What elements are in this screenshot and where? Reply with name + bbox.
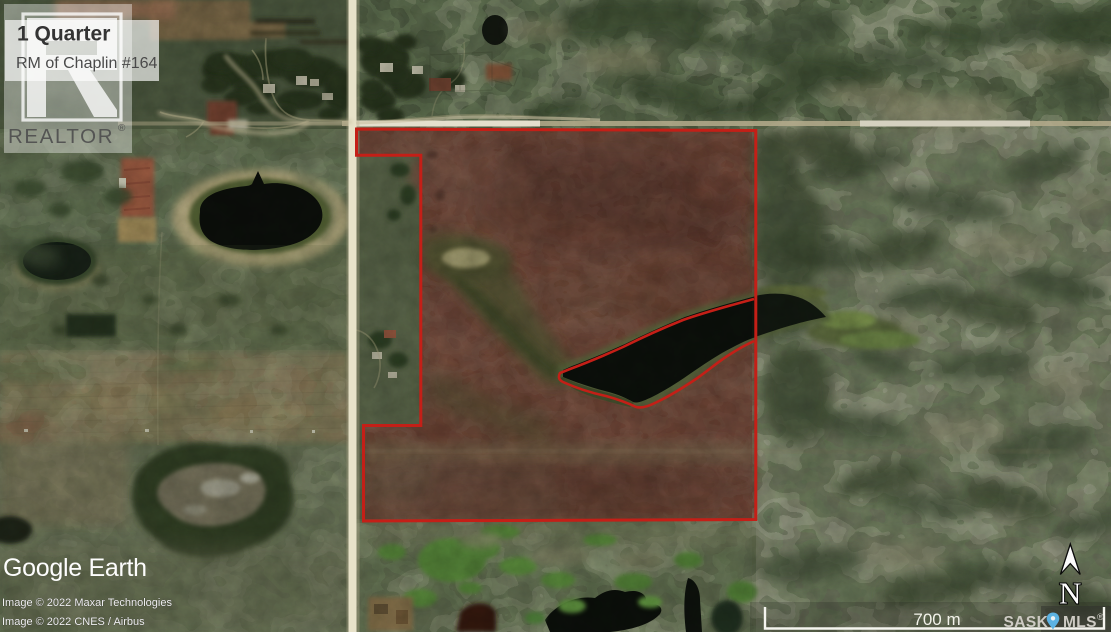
svg-text:MLS: MLS: [1063, 614, 1097, 631]
svg-text:700 m: 700 m: [913, 610, 960, 629]
svg-text:1 Quarter: 1 Quarter: [17, 23, 110, 46]
svg-text:REALTOR: REALTOR: [8, 125, 114, 148]
svg-text:®: ®: [1097, 612, 1104, 622]
svg-text:RM of Chaplin #164: RM of Chaplin #164: [16, 55, 158, 72]
svg-text:Google Earth: Google Earth: [3, 554, 147, 582]
svg-text:Image © 2022 CNES / Airbus: Image © 2022 CNES / Airbus: [2, 616, 145, 628]
svg-text:Image © 2022 Maxar Technologie: Image © 2022 Maxar Technologies: [2, 597, 172, 609]
svg-text:N: N: [1059, 576, 1081, 611]
svg-text:®: ®: [118, 123, 126, 134]
svg-text:SASK: SASK: [1004, 614, 1049, 631]
